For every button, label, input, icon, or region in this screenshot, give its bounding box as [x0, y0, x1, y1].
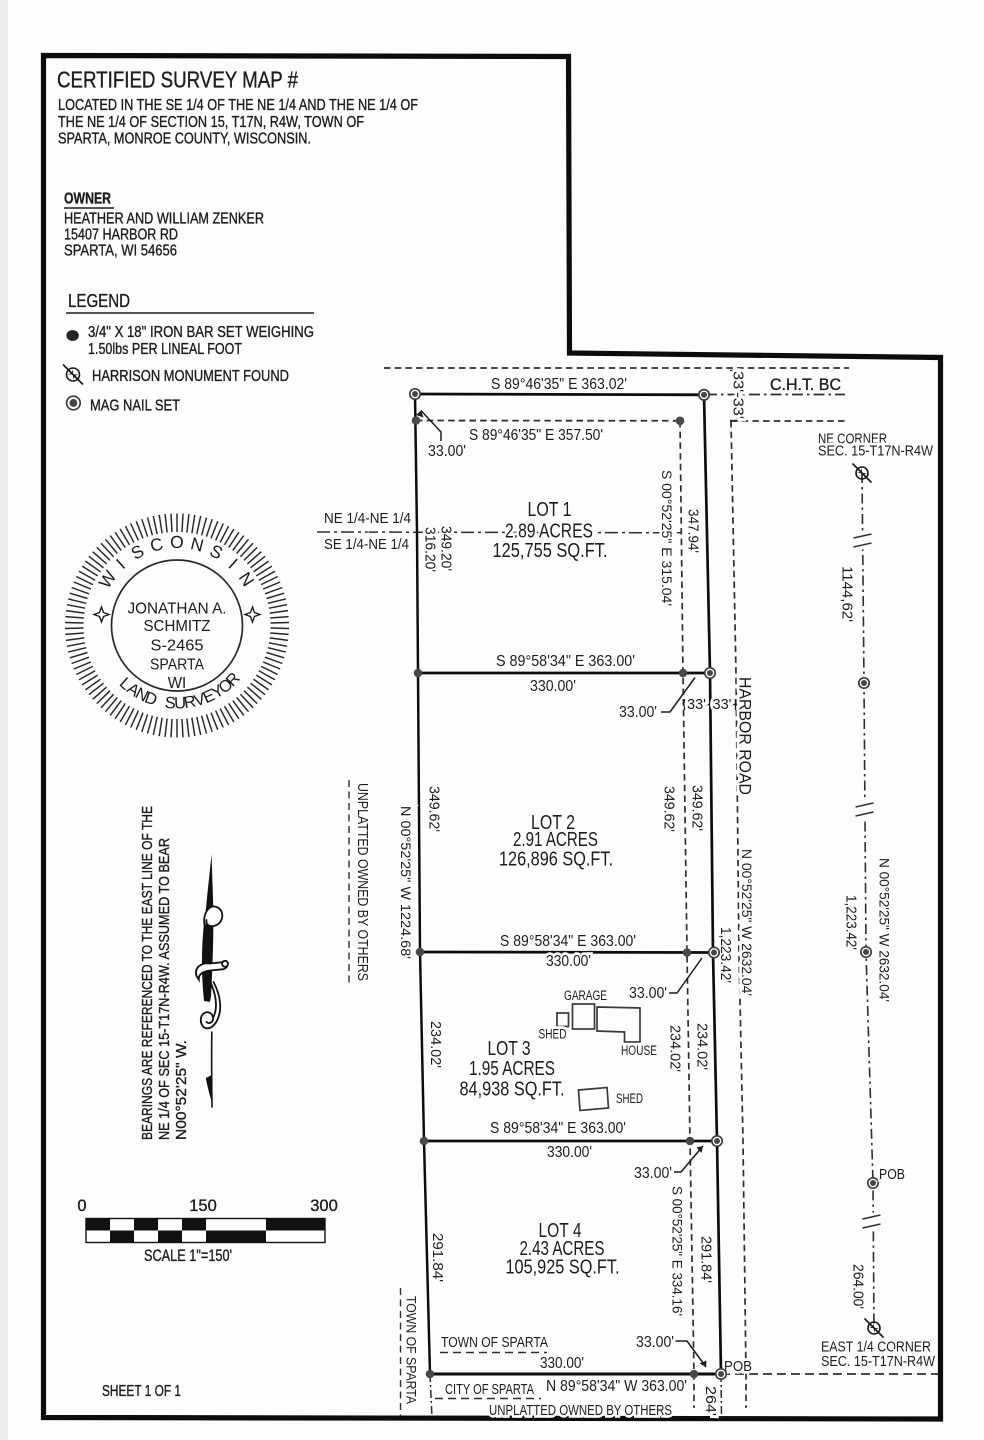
svg-text:LOT 3: LOT 3	[488, 1038, 531, 1060]
svg-text:3/4" X 18" IRON BAR SET WEIGH: 3/4" X 18" IRON BAR SET WEIGHING	[88, 324, 314, 341]
svg-text:NE 1/4 OF SEC 15-T17N-R4W. ASS: NE 1/4 OF SEC 15-T17N-R4W. ASSUMED TO BE…	[156, 838, 173, 1140]
svg-text:0: 0	[77, 1197, 86, 1215]
svg-text:CERTIFIED SURVEY MAP #: CERTIFIED SURVEY MAP #	[57, 67, 298, 93]
svg-text:S-2465: S-2465	[151, 638, 204, 655]
svg-text:SHEET 1 OF 1: SHEET 1 OF 1	[102, 1383, 181, 1400]
svg-text:300: 300	[310, 1197, 338, 1215]
svg-text:SPARTA: SPARTA	[150, 657, 204, 674]
svg-text:291.84': 291.84'	[698, 1236, 714, 1283]
svg-text:TOWN OF SPARTA: TOWN OF SPARTA	[441, 1335, 548, 1351]
svg-text:15407 HARBOR RD: 15407 HARBOR RD	[64, 227, 178, 244]
svg-text:330.00': 330.00'	[530, 678, 576, 695]
svg-text:S 89°58'34" E 363.00': S 89°58'34" E 363.00'	[490, 1120, 626, 1137]
svg-text:1144,62': 1144,62'	[839, 566, 855, 622]
svg-text:NE 1/4-NE 1/4: NE 1/4-NE 1/4	[324, 510, 411, 527]
svg-text:33': 33'	[687, 697, 706, 713]
svg-text:LOCATED IN THE SE 1/4 OF THE N: LOCATED IN THE SE 1/4 OF THE NE 1/4 AND …	[58, 97, 418, 114]
svg-text:349.62': 349.62'	[689, 785, 705, 831]
svg-text:330.00': 330.00'	[546, 953, 591, 970]
svg-text:S 00°52'25" E 334.16': S 00°52'25" E 334.16'	[670, 1186, 686, 1316]
svg-text:84,938 SQ.FT.: 84,938 SQ.FT.	[460, 1079, 565, 1101]
svg-text:347.94': 347.94'	[685, 509, 701, 553]
svg-text:O: O	[170, 532, 184, 552]
svg-text:264': 264'	[702, 1386, 718, 1416]
svg-text:S 89°46'35" E 357.50': S 89°46'35" E 357.50'	[469, 427, 603, 444]
svg-text:HEATHER AND WILLIAM ZENKER: HEATHER AND WILLIAM ZENKER	[64, 211, 264, 228]
svg-text:150: 150	[189, 1197, 217, 1215]
svg-text:LOT 1: LOT 1	[528, 499, 572, 521]
svg-text:SHED: SHED	[539, 1027, 567, 1042]
svg-text:330.00': 330.00'	[547, 1144, 592, 1161]
svg-text:125,755 SQ.FT.: 125,755 SQ.FT.	[493, 540, 608, 562]
svg-text:N 00°52'25" W 1224.68': N 00°52'25" W 1224.68'	[398, 806, 414, 959]
svg-text:WI: WI	[168, 675, 187, 692]
svg-text:HARBOR ROAD: HARBOR ROAD	[736, 677, 754, 795]
svg-text:C.H.T. BC: C.H.T. BC	[770, 375, 841, 394]
svg-text:JONATHAN A.: JONATHAN A.	[128, 601, 227, 618]
svg-text:SCALE 1"=150': SCALE 1"=150'	[144, 1247, 232, 1265]
svg-text:S 89°58'34" E 363.00': S 89°58'34" E 363.00'	[500, 933, 636, 950]
svg-text:N00°52'25" W.: N00°52'25" W.	[173, 1040, 190, 1140]
svg-text:291.84': 291.84'	[429, 1233, 445, 1282]
svg-text:SEC. 15-T17N-R4W: SEC. 15-T17N-R4W	[821, 1353, 936, 1370]
svg-text:105,925 SQ.FT.: 105,925 SQ.FT.	[506, 1257, 620, 1279]
svg-text:POB: POB	[879, 1166, 905, 1183]
svg-text:UNPLATTED OWNED BY OTHERS: UNPLATTED OWNED BY OTHERS	[489, 1403, 672, 1419]
svg-text:SCHMITZ: SCHMITZ	[144, 618, 211, 635]
svg-text:349.62': 349.62'	[426, 786, 442, 832]
svg-text:1.50lbs PER LINEAL FOOT: 1.50lbs PER LINEAL FOOT	[88, 341, 242, 358]
svg-text:N 00°52'25" W 2632.04': N 00°52'25" W 2632.04'	[739, 849, 755, 996]
svg-text:33'-33': 33'-33'	[730, 371, 746, 419]
svg-text:264.00': 264.00'	[850, 1264, 866, 1309]
svg-text:HOUSE: HOUSE	[621, 1043, 657, 1058]
svg-text:330.00': 330.00'	[540, 1355, 584, 1372]
svg-text:349.62': 349.62'	[661, 786, 677, 832]
svg-text:N 00°52'25" W 2632.04': N 00°52'25" W 2632.04'	[877, 858, 893, 1002]
svg-text:SE 1/4-NE 1/4: SE 1/4-NE 1/4	[324, 536, 409, 553]
svg-text:1,223.42': 1,223.42'	[843, 895, 859, 950]
svg-text:349.20': 349.20'	[438, 526, 454, 571]
svg-text:SEC. 15-T17N-R4W: SEC. 15-T17N-R4W	[818, 443, 934, 460]
svg-text:OWNER: OWNER	[64, 191, 111, 208]
svg-text:N 89°58'34" W 363.00': N 89°58'34" W 363.00'	[546, 1378, 687, 1395]
svg-text:HARRISON MONUMENT FOUND: HARRISON MONUMENT FOUND	[92, 368, 289, 385]
svg-text:33': 33'	[713, 697, 732, 713]
svg-text:1.95 ACRES: 1.95 ACRES	[469, 1058, 555, 1080]
svg-text:33.00': 33.00'	[636, 1334, 674, 1351]
svg-text:POB: POB	[724, 1358, 752, 1375]
svg-text:234.02': 234.02'	[427, 1021, 443, 1068]
svg-text:S 89°58'34" E 363.00': S 89°58'34" E 363.00'	[496, 653, 635, 670]
svg-text:SPARTA, MONROE COUNTY, WISCONS: SPARTA, MONROE COUNTY, WISCONSIN.	[58, 131, 311, 148]
svg-text:234.02': 234.02'	[694, 1023, 710, 1070]
svg-text:33.00': 33.00'	[634, 1165, 672, 1182]
svg-text:316.20': 316.20'	[422, 527, 438, 572]
svg-text:SPARTA, WI 54656: SPARTA, WI 54656	[64, 243, 177, 260]
svg-text:33.00': 33.00'	[619, 704, 657, 721]
svg-text:UNPLATTED OWNED BY OTHERS: UNPLATTED OWNED BY OTHERS	[354, 783, 370, 981]
svg-text:LEGEND: LEGEND	[68, 290, 130, 311]
svg-text:126,896 SQ.FT.: 126,896 SQ.FT.	[499, 849, 613, 871]
svg-text:THE NE 1/4 OF SECTION 15, T17: THE NE 1/4 OF SECTION 15, T17N, R4W, TOW…	[58, 114, 364, 131]
svg-text:S 89°46'35" E 363.02': S 89°46'35" E 363.02'	[491, 376, 627, 393]
svg-text:GARAGE: GARAGE	[564, 988, 607, 1003]
svg-text:BEARINGS ARE REFERENCED TO THE: BEARINGS ARE REFERENCED TO THE EAST LINE…	[139, 806, 156, 1140]
svg-text:33.00': 33.00'	[629, 985, 667, 1002]
svg-text:SHED: SHED	[616, 1091, 643, 1106]
svg-text:MAG NAIL SET: MAG NAIL SET	[90, 398, 180, 415]
svg-text:33.00': 33.00'	[428, 443, 466, 460]
svg-text:S 00°52'25" E 315.04': S 00°52'25" E 315.04'	[659, 470, 675, 606]
svg-text:TOWN OF SPARTA: TOWN OF SPARTA	[404, 1296, 420, 1405]
svg-text:CITY OF SPARTA: CITY OF SPARTA	[445, 1382, 534, 1398]
svg-text:234.02': 234.02'	[667, 1025, 683, 1072]
